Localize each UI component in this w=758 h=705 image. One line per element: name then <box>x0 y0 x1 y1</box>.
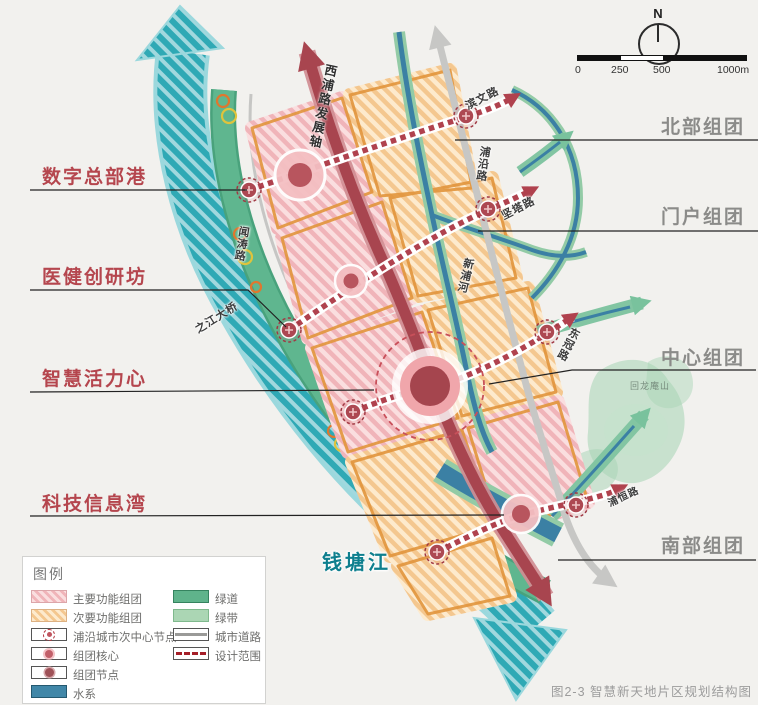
water-swatch <box>31 685 67 698</box>
river-label-qiantang: 钱塘江 <box>322 546 391 575</box>
scale-tick-0: 0 <box>575 64 581 76</box>
legend-label: 绿道 <box>215 591 238 607</box>
secondary-cluster-swatch <box>31 609 67 622</box>
river-flow-arrow-north <box>137 6 223 60</box>
urban-road-swatch <box>173 628 209 641</box>
legend-label: 主要功能组团 <box>73 591 142 607</box>
scale-tick-1000: 1000m <box>717 64 749 76</box>
scale-tick-250: 250 <box>611 64 629 76</box>
legend-label: 次要功能组团 <box>73 610 142 626</box>
greenway-swatch <box>173 590 209 603</box>
scale-bar: 0 250 500 1000m <box>575 53 751 79</box>
legend: 图例 主要功能组团 次要功能组团 浦沿城市次中心节点 组团核心 组团节点 水系 … <box>22 556 266 704</box>
north-arrow-label: N <box>653 6 662 21</box>
zone-label-tech-info-bay: 科技信息湾 <box>42 489 147 516</box>
figure-caption: 图2-3 智慧新天地片区规划结构图 <box>551 681 752 700</box>
legend-label: 组团节点 <box>73 667 119 683</box>
legend-label: 城市道路 <box>215 629 261 645</box>
legend-label: 绿带 <box>215 610 238 626</box>
design-scope-swatch <box>173 647 209 660</box>
zone-label-digital-hq-port: 数字总部港 <box>42 162 147 189</box>
mountain-label: 回龙庵山 <box>630 379 670 392</box>
scale-tick-500: 500 <box>653 64 671 76</box>
legend-label: 水系 <box>73 686 96 702</box>
zone-label-north-cluster: 北部组团 <box>661 112 745 139</box>
scale-bar-segments <box>577 55 747 61</box>
planning-structure-figure: 数字总部港 医健创研坊 智慧活力心 科技信息湾 北部组团 门户组团 中心组团 南… <box>0 0 758 705</box>
legend-label: 组团核心 <box>73 648 119 664</box>
subcenter-node-swatch <box>31 628 67 641</box>
zone-label-smart-vitality-heart: 智慧活力心 <box>42 364 147 391</box>
cluster-node-swatch <box>31 666 67 679</box>
cluster-core-swatch <box>31 647 67 660</box>
zone-label-medical-innovation: 医健创研坊 <box>42 262 147 289</box>
zone-label-south-cluster: 南部组团 <box>661 531 745 558</box>
legend-label: 设计范围 <box>215 648 261 664</box>
legend-title: 图例 <box>33 564 65 584</box>
compass-needle <box>657 25 659 42</box>
greenbelt-swatch <box>173 609 209 622</box>
subcenter-node <box>392 348 468 424</box>
zone-label-gateway-cluster: 门户组团 <box>661 202 745 229</box>
legend-label: 浦沿城市次中心节点 <box>73 629 177 645</box>
zone-label-central-cluster: 中心组团 <box>661 343 745 370</box>
main-cluster-swatch <box>31 590 67 603</box>
